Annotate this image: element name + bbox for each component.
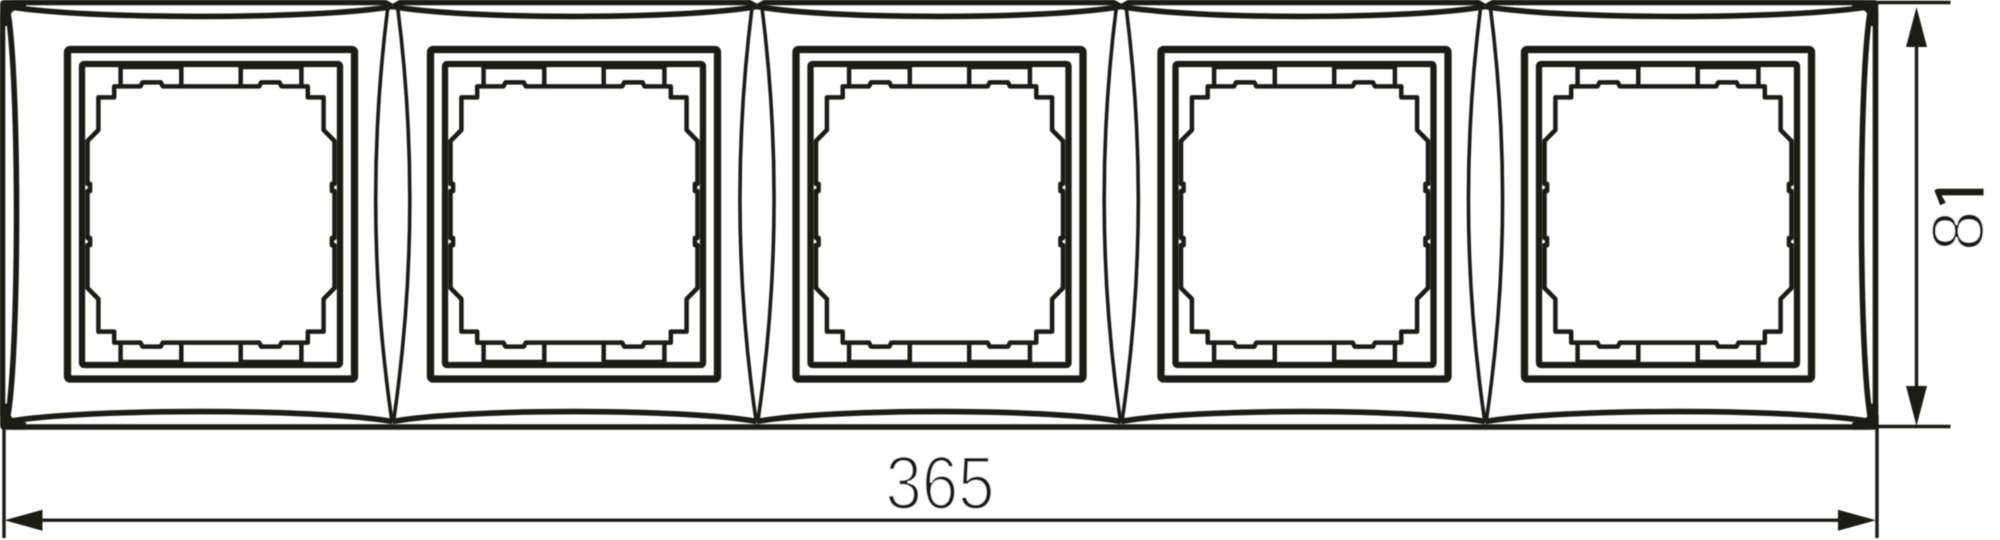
svg-text:365: 365 bbox=[886, 441, 995, 525]
svg-text:8: 8 bbox=[1917, 210, 2000, 251]
